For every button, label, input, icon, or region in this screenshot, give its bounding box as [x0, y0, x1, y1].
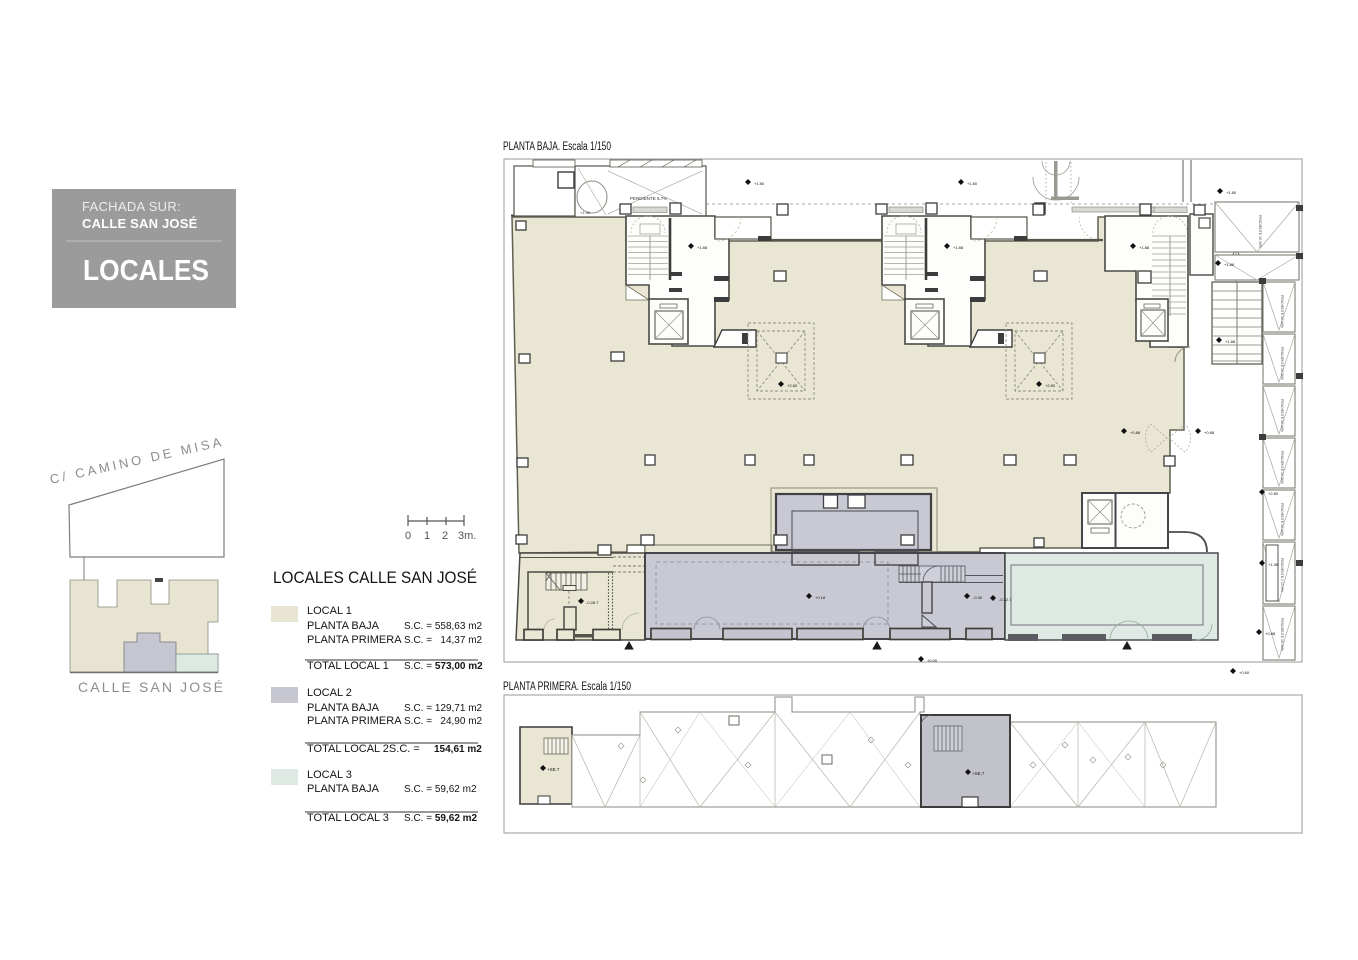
svg-text:PLANTA PRIMERA: PLANTA PRIMERA — [307, 715, 402, 727]
svg-text:+2.80: +2.80 — [1045, 383, 1056, 388]
svg-text:TOTAL LOCAL 1: TOTAL LOCAL 1 — [307, 660, 389, 672]
svg-text:PLANTA PRIMERA. Escala 1/150: PLANTA PRIMERA. Escala 1/150 — [503, 681, 631, 693]
svg-text:154,61 m2: 154,61 m2 — [434, 744, 482, 755]
svg-text:LOCAL 2: LOCAL 2 — [307, 687, 352, 699]
svg-text:+1.88: +1.88 — [1225, 339, 1236, 344]
svg-text:S.C. = 59,62 m2: S.C. = 59,62 m2 — [404, 784, 477, 795]
svg-text:+SE.7: +SE.7 — [972, 771, 985, 776]
svg-text:LOCAL 3: LOCAL 3 — [307, 769, 352, 781]
svg-text:+1.88: +1.88 — [1139, 245, 1150, 250]
svg-text:+0.88: +0.88 — [1204, 430, 1215, 435]
svg-text:+2.80: +2.80 — [787, 383, 798, 388]
svg-text:PENDIENTE 1 13.6%: PENDIENTE 1 13.6% — [1280, 558, 1284, 592]
svg-text:TOTAL LOCAL 3: TOTAL LOCAL 3 — [307, 812, 389, 824]
svg-text:PENDIENTE 16.36%: PENDIENTE 16.36% — [1280, 399, 1284, 432]
svg-text:+0.60: +0.60 — [1239, 670, 1250, 675]
svg-text:+SE.7: +SE.7 — [547, 767, 560, 772]
svg-text:S.C. = 24,90 m2: S.C. = 24,90 m2 — [404, 716, 483, 727]
svg-text:S.C. = 14,37 m2: S.C. = 14,37 m2 — [404, 635, 483, 646]
svg-text:+1.80: +1.80 — [1226, 190, 1237, 195]
svg-text:CALLE SAN JOSÉ: CALLE SAN JOSÉ — [82, 216, 198, 231]
svg-text:PENDIENTE 16.36%: PENDIENTE 16.36% — [1280, 347, 1284, 380]
svg-text:S.C. = 59,62 m2: S.C. = 59,62 m2 — [404, 813, 478, 824]
svg-text:PENDIENTE 16.36%: PENDIENTE 16.36% — [1280, 451, 1284, 484]
svg-text:S.C. = 573,00 m2: S.C. = 573,00 m2 — [404, 661, 483, 672]
svg-text:PLANTA PRIMERA: PLANTA PRIMERA — [307, 634, 402, 646]
svg-text:PLANTA BAJA: PLANTA BAJA — [307, 783, 380, 795]
svg-text:PENDIENTE 16.36%: PENDIENTE 16.36% — [1280, 618, 1284, 651]
svg-text:-0.30: -0.30 — [973, 595, 983, 600]
svg-text:+0.00: +0.00 — [927, 658, 938, 663]
svg-text:+1.80: +1.80 — [967, 181, 978, 186]
svg-text:FACHADA SUR:: FACHADA SUR: — [82, 199, 181, 214]
svg-text:+1.80: +1.80 — [754, 181, 765, 186]
svg-text:S.C. = 558,63 m2: S.C. = 558,63 m2 — [404, 621, 483, 632]
svg-text:-0.28.7: -0.28.7 — [586, 600, 599, 605]
svg-text:+1.88: +1.88 — [1224, 262, 1235, 267]
svg-text:PLANTA BAJA: PLANTA BAJA — [307, 620, 380, 632]
svg-text:+2.80: +2.80 — [1268, 491, 1279, 496]
svg-text:3m.: 3m. — [458, 530, 476, 542]
svg-text:PENDIENTE 16.36%: PENDIENTE 16.36% — [1258, 215, 1262, 248]
svg-text:+1.88: +1.88 — [953, 245, 964, 250]
svg-text:+1.88: +1.88 — [697, 245, 708, 250]
svg-text:+1.38: +1.38 — [1268, 562, 1279, 567]
svg-text:PENDIENTE 16.36%: PENDIENTE 16.36% — [1280, 295, 1284, 328]
svg-text:-0.32.7: -0.32.7 — [999, 597, 1012, 602]
svg-text:PLANTA BAJA. Escala 1/150: PLANTA BAJA. Escala 1/150 — [503, 141, 611, 153]
svg-text:LOCALES: LOCALES — [83, 255, 209, 287]
svg-text:+0.88: +0.88 — [1265, 631, 1276, 636]
svg-text:+0.88: +0.88 — [1130, 430, 1141, 435]
svg-text:+0.18: +0.18 — [815, 595, 826, 600]
svg-text:PENDIENTE 6.7%: PENDIENTE 6.7% — [630, 196, 667, 201]
svg-text:CALLE SAN JOSÉ: CALLE SAN JOSÉ — [78, 679, 226, 695]
svg-text:2: 2 — [442, 530, 448, 542]
svg-text:PLANTA BAJA: PLANTA BAJA — [307, 702, 380, 714]
svg-text:1: 1 — [424, 530, 430, 542]
svg-text:TOTAL LOCAL 2S.C. =: TOTAL LOCAL 2S.C. = — [307, 743, 420, 755]
svg-text:+1.40: +1.40 — [580, 210, 591, 215]
svg-text:C/ CAMINO DE MISA: C/ CAMINO DE MISA — [48, 434, 225, 487]
svg-text:LOCALES CALLE SAN JOSÉ: LOCALES CALLE SAN JOSÉ — [273, 568, 477, 587]
svg-text:0: 0 — [405, 530, 411, 542]
svg-text:PENDIENTE 16.36%: PENDIENTE 16.36% — [1280, 503, 1284, 536]
svg-text:S.C. = 129,71 m2: S.C. = 129,71 m2 — [404, 703, 483, 714]
svg-text:LOCAL 1: LOCAL 1 — [307, 605, 352, 617]
